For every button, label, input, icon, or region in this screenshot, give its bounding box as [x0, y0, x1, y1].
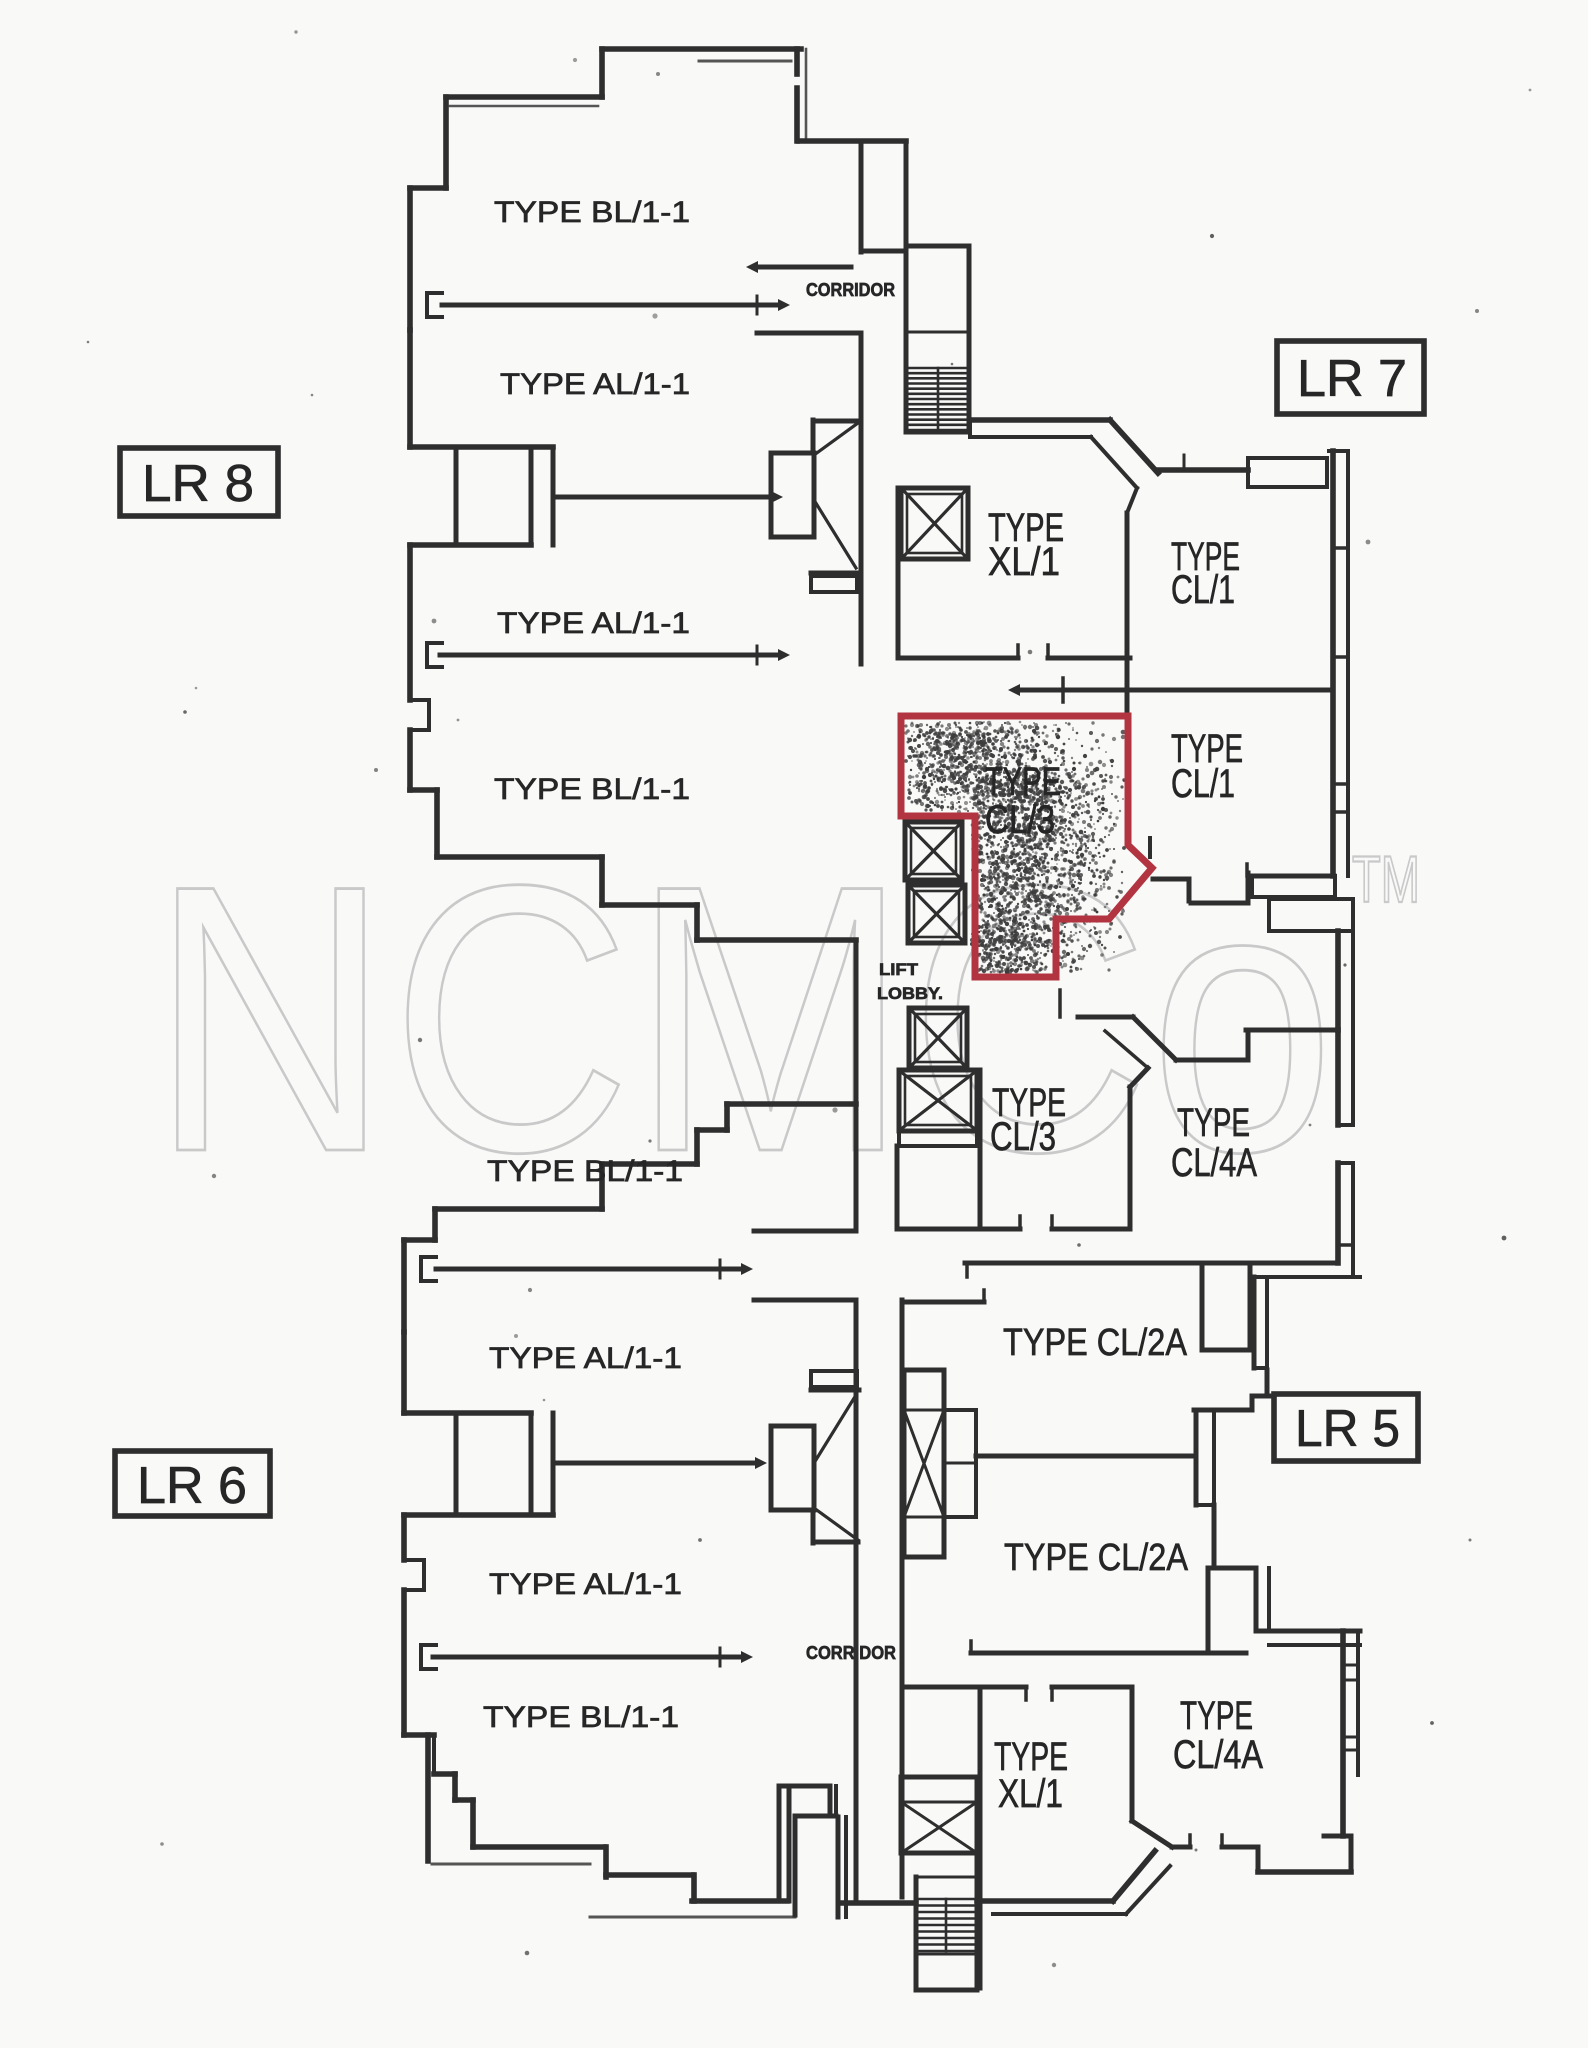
svg-text:TYPE: TYPE — [1180, 1694, 1253, 1738]
svg-text:TYPE BL/1-1: TYPE BL/1-1 — [483, 1701, 679, 1734]
svg-text:LR 6: LR 6 — [137, 1457, 247, 1515]
svg-text:TYPE: TYPE — [1177, 1101, 1250, 1145]
svg-text:CL/4A: CL/4A — [1171, 1141, 1257, 1185]
svg-text:CL/1: CL/1 — [1171, 762, 1235, 806]
svg-text:LR 7: LR 7 — [1297, 350, 1407, 408]
svg-text:CL/3: CL/3 — [990, 1115, 1056, 1159]
svg-text:TYPE CL/2A: TYPE CL/2A — [1004, 1537, 1189, 1579]
svg-text:CL/3: CL/3 — [985, 798, 1055, 842]
svg-text:TYPE AL/1-1: TYPE AL/1-1 — [489, 1568, 682, 1601]
svg-text:TYPE BL/1-1: TYPE BL/1-1 — [494, 196, 690, 229]
svg-text:TYPE BL/1-1: TYPE BL/1-1 — [494, 773, 690, 806]
svg-text:CL/1: CL/1 — [1171, 568, 1235, 612]
svg-text:TYPE AL/1-1: TYPE AL/1-1 — [497, 607, 690, 640]
svg-text:TM: TM — [1352, 842, 1420, 916]
svg-text:CL/4A: CL/4A — [1173, 1733, 1263, 1777]
svg-text:NCMCo: NCMCo — [150, 806, 1335, 1231]
svg-text:XL/1: XL/1 — [988, 540, 1060, 584]
svg-text:TYPE BL/1-1: TYPE BL/1-1 — [487, 1155, 683, 1188]
svg-text:XL/1: XL/1 — [998, 1772, 1063, 1816]
svg-text:LIFT: LIFT — [879, 960, 919, 979]
svg-text:CORRIDOR: CORRIDOR — [806, 280, 895, 300]
svg-text:LR 8: LR 8 — [142, 455, 254, 513]
svg-text:TYPE AL/1-1: TYPE AL/1-1 — [500, 368, 690, 401]
svg-text:LR 5: LR 5 — [1295, 1400, 1400, 1458]
svg-text:TYPE CL/2A: TYPE CL/2A — [1003, 1322, 1188, 1364]
svg-text:LOBBY.: LOBBY. — [877, 984, 943, 1003]
svg-text:TYPE AL/1-1: TYPE AL/1-1 — [489, 1342, 682, 1375]
svg-text:CORRIDOR: CORRIDOR — [806, 1643, 896, 1663]
